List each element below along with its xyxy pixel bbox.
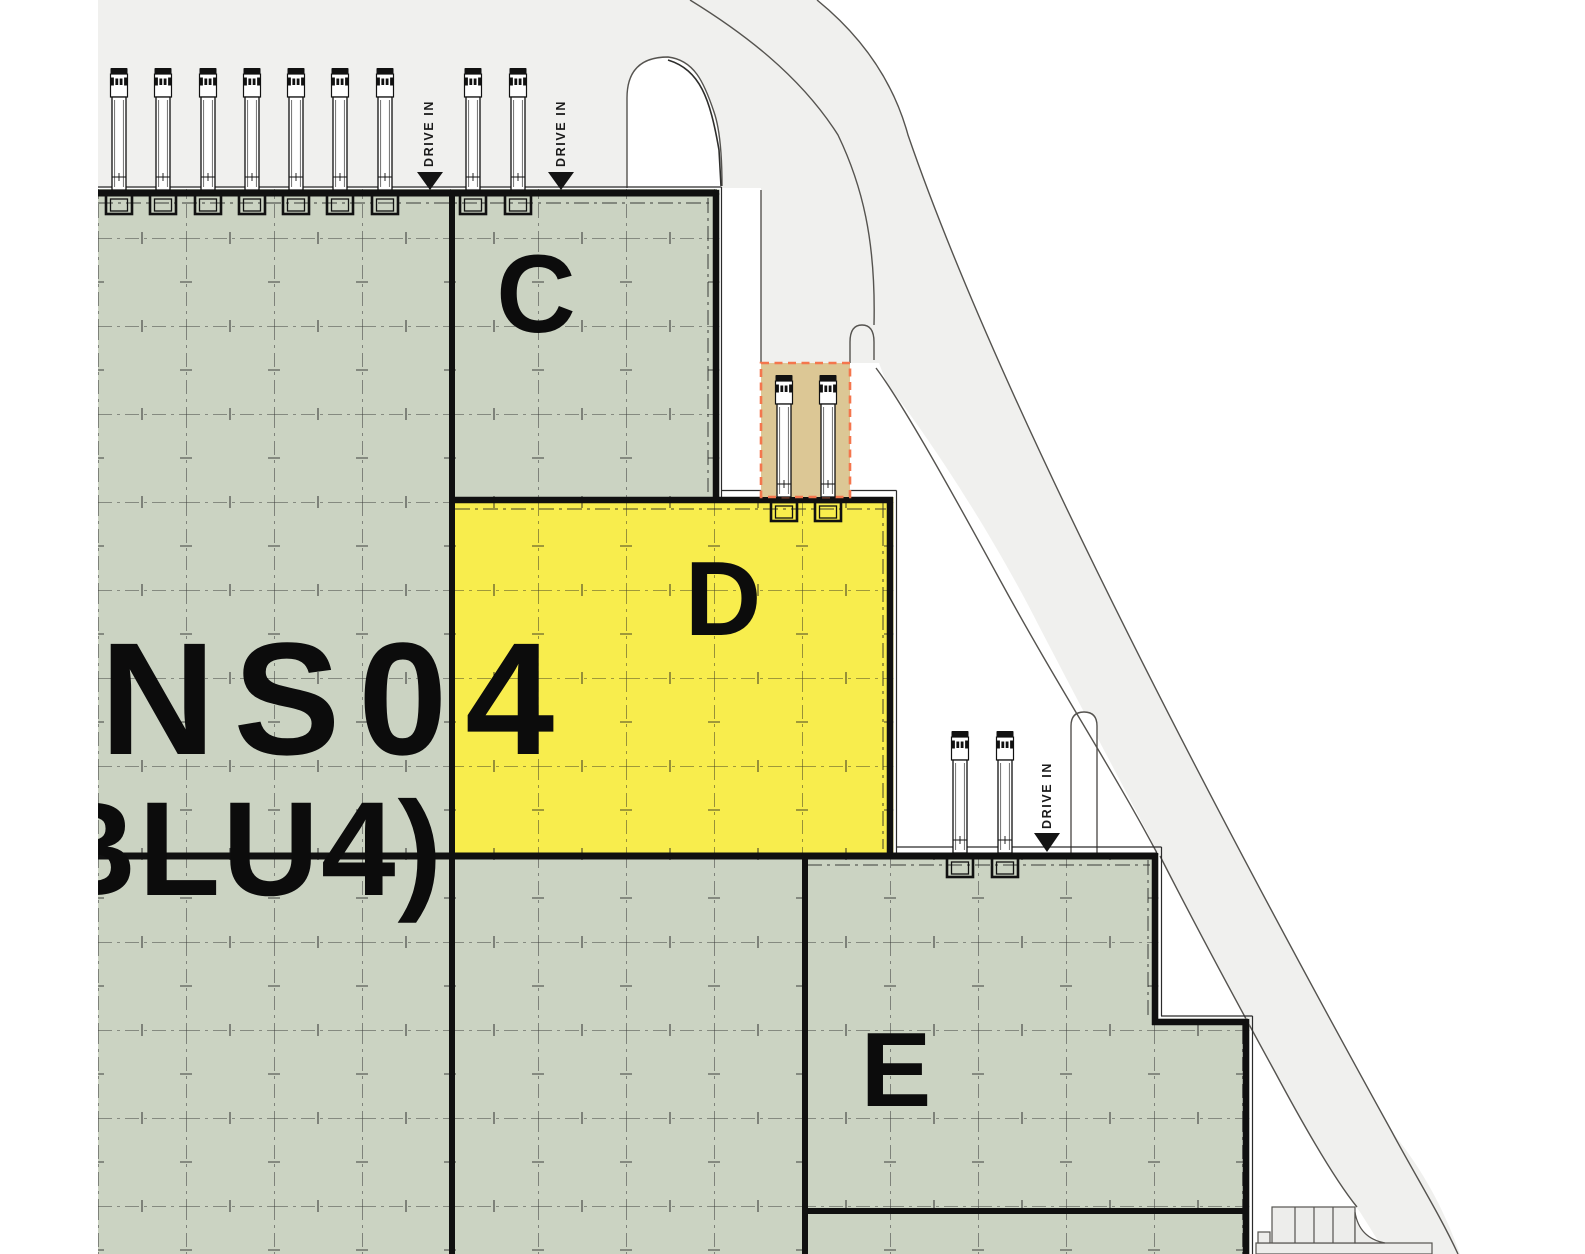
unit-c-label: C xyxy=(496,233,575,356)
truck-icon xyxy=(819,375,836,497)
site-plan-svg: DRIVE IN DRIVE IN DRIVE IN C D E NS04 (B… xyxy=(0,0,1585,1254)
site-plan: DRIVE IN DRIVE IN DRIVE IN C D E NS04 (B… xyxy=(0,0,1585,1254)
unit-d-label: D xyxy=(685,540,762,658)
dock-approach-channel xyxy=(761,186,880,363)
yard-tongue xyxy=(1071,712,1097,853)
drive-in-label-3: DRIVE IN xyxy=(1040,762,1054,829)
truck-icon xyxy=(951,731,968,853)
unit-e-label: E xyxy=(861,1011,932,1129)
truck-icon xyxy=(110,68,127,190)
truck-icon xyxy=(154,68,171,190)
truck-icon xyxy=(464,68,481,190)
truck-icon xyxy=(509,68,526,190)
truck-icon xyxy=(376,68,393,190)
page-left-margin xyxy=(0,0,98,1254)
truck-icon xyxy=(331,68,348,190)
drive-in-label-1: DRIVE IN xyxy=(422,100,436,167)
truck-icon xyxy=(243,68,260,190)
drive-in-arrow-3 xyxy=(1034,833,1060,852)
truck-icon xyxy=(287,68,304,190)
truck-icon xyxy=(199,68,216,190)
plan-main-label: NS04 xyxy=(100,609,572,788)
drive-in-label-2: DRIVE IN xyxy=(554,100,568,167)
truck-icon xyxy=(775,375,792,497)
truck-icon xyxy=(996,731,1013,853)
